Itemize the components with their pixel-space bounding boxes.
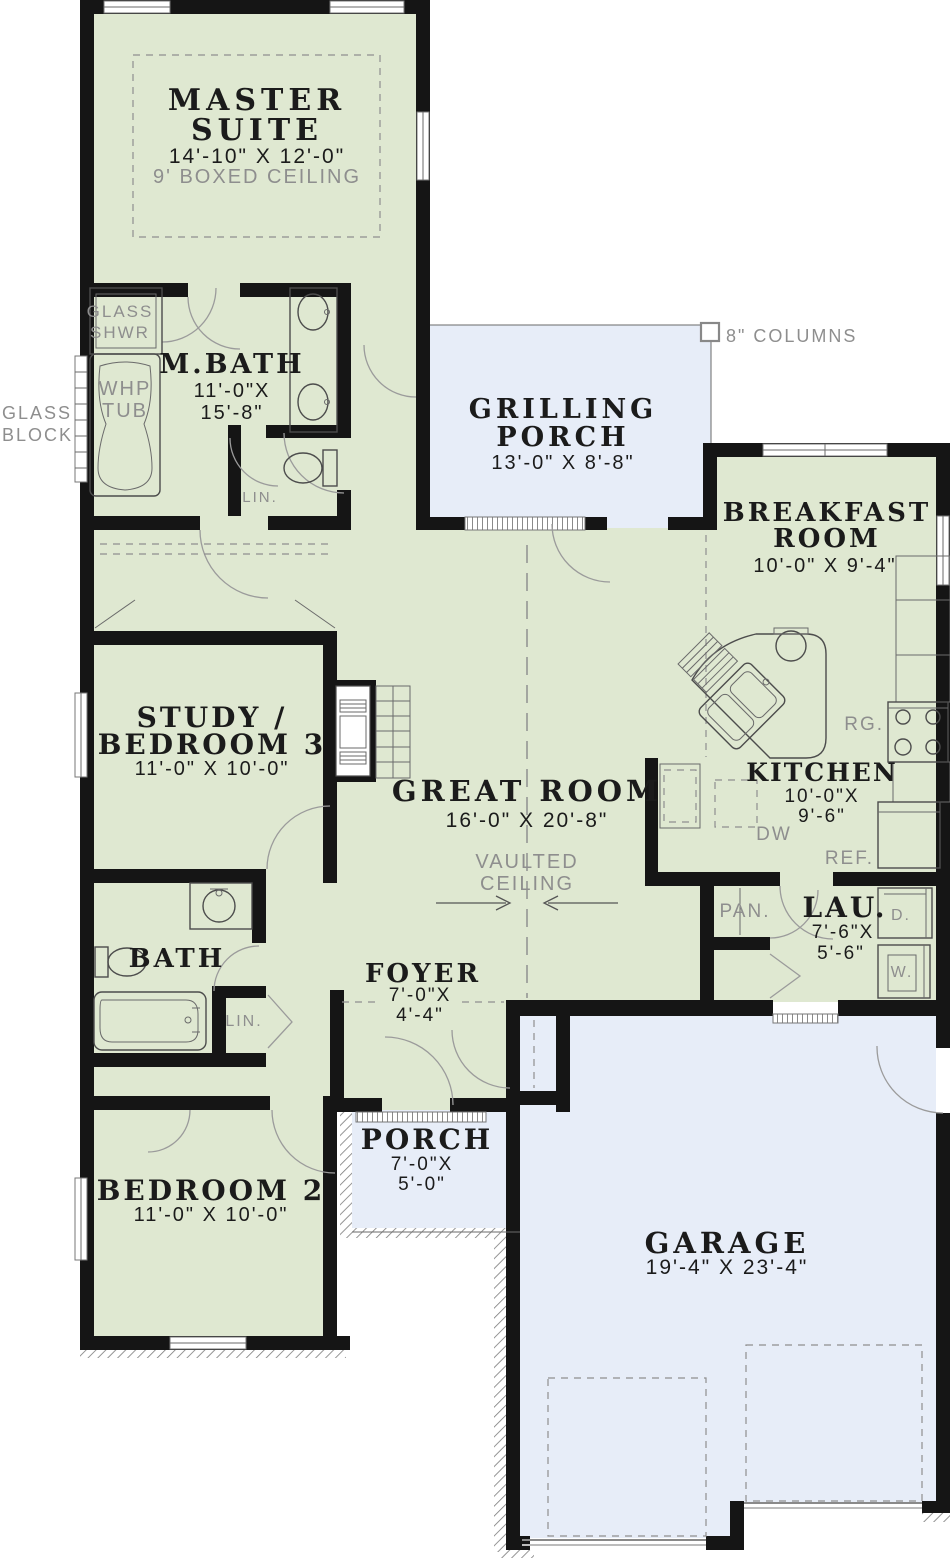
- svg-text:BEDROOM 2: BEDROOM 2: [97, 1174, 326, 1207]
- svg-text:PORCH: PORCH: [496, 422, 629, 453]
- window: [75, 1178, 87, 1260]
- svg-text:W.: W.: [891, 964, 914, 981]
- floor-plan-drawing: MASTER SUITE 14'-10" X 12'-0" 9' BOXED C…: [0, 0, 950, 1559]
- svg-text:SUITE: SUITE: [191, 113, 323, 148]
- svg-text:SHWR: SHWR: [90, 323, 150, 342]
- glass-block-window: [75, 356, 87, 482]
- svg-text:GLASS: GLASS: [87, 302, 154, 321]
- porch-threshold: [356, 1112, 486, 1122]
- floor-plan-page: MASTER SUITE 14'-10" X 12'-0" 9' BOXED C…: [0, 0, 950, 1559]
- svg-text:LIN.: LIN.: [225, 1013, 262, 1030]
- porch-window-wall: [465, 517, 585, 530]
- svg-text:RG.: RG.: [844, 714, 884, 735]
- svg-text:D.: D.: [891, 907, 911, 924]
- garage-door-threshold: [773, 1014, 838, 1023]
- svg-text:TUB: TUB: [102, 400, 148, 422]
- svg-text:11'-0" X 10'-0": 11'-0" X 10'-0": [134, 1204, 289, 1226]
- svg-text:DW: DW: [756, 824, 792, 845]
- svg-text:GRILLING: GRILLING: [469, 394, 657, 425]
- svg-text:10'-0"X: 10'-0"X: [784, 786, 859, 807]
- svg-text:GARAGE: GARAGE: [645, 1226, 810, 1260]
- svg-text:5'-6": 5'-6": [817, 943, 865, 964]
- svg-text:M.BATH: M.BATH: [159, 349, 304, 380]
- room-label-garage: GARAGE 19'-4" X 23'-4": [645, 1226, 810, 1279]
- svg-text:8" COLUMNS: 8" COLUMNS: [726, 326, 857, 346]
- svg-text:VAULTED: VAULTED: [475, 851, 578, 873]
- svg-text:LIN.: LIN.: [242, 489, 278, 506]
- svg-text:7'-0"X: 7'-0"X: [389, 985, 452, 1006]
- svg-text:REF.: REF.: [825, 848, 874, 869]
- svg-text:9' BOXED CEILING: 9' BOXED CEILING: [153, 166, 361, 188]
- svg-text:GLASS: GLASS: [2, 403, 72, 423]
- svg-text:16'-0" X 20'-8": 16'-0" X 20'-8": [446, 809, 609, 832]
- window: [417, 112, 429, 180]
- svg-text:19'-4" X 23'-4": 19'-4" X 23'-4": [646, 1256, 809, 1279]
- svg-text:10'-0" X 9'-4": 10'-0" X 9'-4": [753, 555, 896, 577]
- window: [330, 1, 404, 13]
- svg-text:11'-0"X: 11'-0"X: [194, 380, 271, 402]
- svg-text:GREAT ROOM: GREAT ROOM: [392, 774, 662, 808]
- svg-text:11'-0" X 10'-0": 11'-0" X 10'-0": [135, 758, 290, 780]
- window: [763, 444, 887, 456]
- svg-text:7'-6"X: 7'-6"X: [812, 922, 875, 943]
- svg-text:CEILING: CEILING: [480, 873, 574, 895]
- svg-text:15'-8": 15'-8": [201, 402, 264, 424]
- svg-text:BLOCK: BLOCK: [2, 425, 73, 445]
- svg-text:WHP: WHP: [99, 378, 152, 400]
- svg-text:BATH: BATH: [129, 944, 226, 974]
- window: [170, 1337, 246, 1349]
- window: [104, 1, 170, 13]
- svg-text:14'-10" X 12'-0": 14'-10" X 12'-0": [169, 145, 345, 168]
- svg-text:PORCH: PORCH: [361, 1123, 493, 1156]
- window: [937, 516, 949, 585]
- svg-text:ROOM: ROOM: [773, 524, 881, 554]
- svg-text:9'-6": 9'-6": [798, 806, 846, 827]
- svg-text:KITCHEN: KITCHEN: [746, 758, 897, 787]
- svg-text:PAN.: PAN.: [720, 901, 771, 922]
- room-label-grilling-porch: GRILLING PORCH 13'-0" X 8'-8": [469, 394, 657, 474]
- room-label-bath: BATH: [129, 944, 226, 974]
- svg-text:4'-4": 4'-4": [396, 1005, 444, 1026]
- svg-text:13'-0" X 8'-8": 13'-0" X 8'-8": [491, 452, 634, 474]
- porch-column: [701, 323, 719, 341]
- svg-text:7'-0"X: 7'-0"X: [391, 1154, 454, 1175]
- svg-text:LAU.: LAU.: [802, 891, 887, 924]
- svg-text:5'-0": 5'-0": [398, 1174, 446, 1195]
- svg-text:BEDROOM 3: BEDROOM 3: [98, 728, 327, 761]
- window: [75, 693, 87, 777]
